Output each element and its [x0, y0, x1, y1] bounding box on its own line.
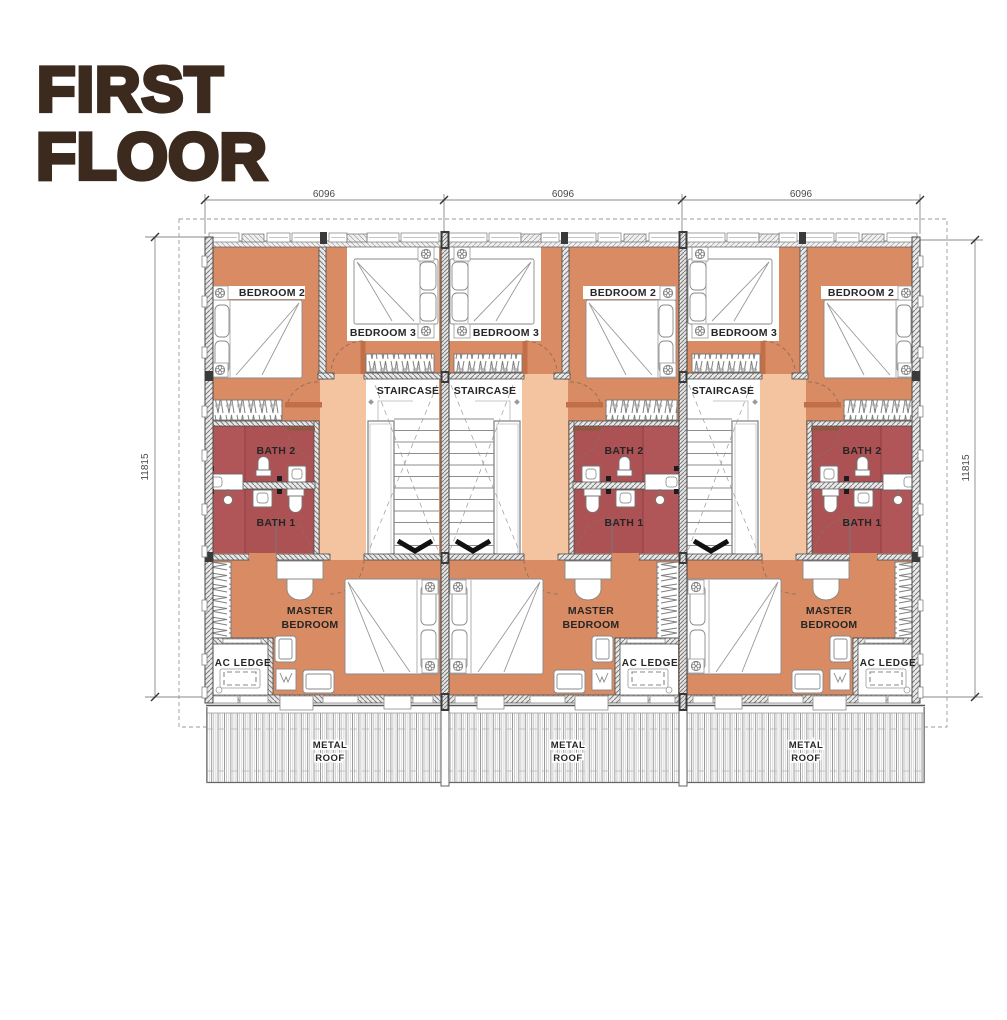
svg-text:BEDROOM 2: BEDROOM 2: [828, 287, 894, 299]
svg-text:BEDROOM 2: BEDROOM 2: [239, 287, 305, 299]
svg-text:BEDROOM: BEDROOM: [282, 619, 339, 631]
svg-text:ROOF: ROOF: [553, 753, 582, 764]
svg-text:STAIRCASE: STAIRCASE: [377, 385, 440, 397]
svg-text:BATH 1: BATH 1: [605, 517, 644, 529]
svg-text:STAIRCASE: STAIRCASE: [692, 385, 755, 397]
svg-text:BEDROOM: BEDROOM: [563, 619, 620, 631]
svg-text:6096: 6096: [313, 189, 336, 200]
svg-text:ROOF: ROOF: [315, 753, 344, 764]
svg-text:STAIRCASE: STAIRCASE: [454, 385, 517, 397]
svg-text:AC LEDGE: AC LEDGE: [622, 658, 678, 669]
svg-text:METAL: METAL: [551, 740, 586, 751]
svg-text:BATH 2: BATH 2: [605, 445, 644, 457]
svg-text:AC LEDGE: AC LEDGE: [215, 658, 271, 669]
svg-text:METAL: METAL: [789, 740, 824, 751]
svg-text:MASTER: MASTER: [806, 605, 852, 617]
svg-text:11815: 11815: [140, 453, 151, 481]
svg-text:6096: 6096: [790, 189, 813, 200]
svg-text:METAL: METAL: [313, 740, 348, 751]
svg-text:AC LEDGE: AC LEDGE: [860, 658, 916, 669]
svg-text:11815: 11815: [961, 454, 972, 482]
svg-text:BEDROOM 2: BEDROOM 2: [590, 287, 656, 299]
svg-text:ROOF: ROOF: [791, 753, 820, 764]
svg-text:BATH 1: BATH 1: [843, 517, 882, 529]
svg-text:FLOOR: FLOOR: [36, 119, 267, 193]
svg-text:BEDROOM 3: BEDROOM 3: [473, 327, 539, 339]
svg-text:MASTER: MASTER: [568, 605, 614, 617]
svg-text:BATH 2: BATH 2: [257, 445, 296, 457]
svg-text:BEDROOM: BEDROOM: [801, 619, 858, 631]
svg-text:MASTER: MASTER: [287, 605, 333, 617]
svg-text:FIRST: FIRST: [37, 55, 224, 125]
svg-text:BATH 2: BATH 2: [843, 445, 882, 457]
svg-text:BEDROOM 3: BEDROOM 3: [711, 327, 777, 339]
svg-text:BATH 1: BATH 1: [257, 517, 296, 529]
svg-text:BEDROOM 3: BEDROOM 3: [350, 327, 416, 339]
svg-text:6096: 6096: [552, 189, 575, 200]
